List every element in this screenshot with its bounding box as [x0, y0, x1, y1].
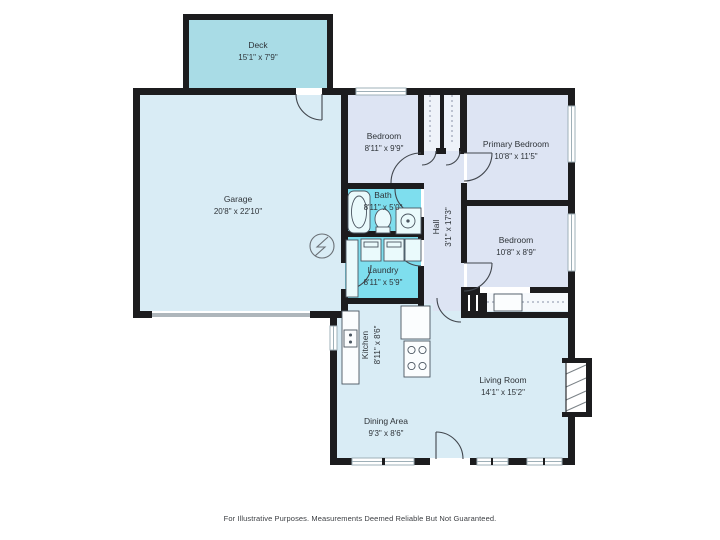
stove — [404, 341, 430, 377]
front-door-gap — [430, 458, 470, 465]
toilet — [375, 209, 391, 229]
fireplace — [565, 363, 586, 412]
room-deck — [186, 17, 330, 91]
electrical-panel-icon — [310, 234, 334, 258]
disclaimer-text: For Illustrative Purposes. Measurements … — [0, 514, 720, 523]
linen-closet — [461, 293, 487, 313]
floor-plan-page: Deck 15'1" x 7'9" Garage 20'8" x 22'10" … — [0, 0, 720, 540]
room-bedroom-right — [467, 206, 568, 287]
kitchen-sink — [344, 330, 357, 347]
room-fills — [136, 17, 568, 460]
room-hall — [424, 151, 464, 311]
garage-deck-door-gap — [296, 88, 322, 95]
refrigerator — [401, 306, 430, 339]
room-primary-bedroom — [467, 91, 568, 200]
closet-dresser — [494, 294, 522, 311]
laundry-counter — [346, 240, 358, 297]
room-garage — [136, 91, 345, 315]
kitchen-counter — [342, 311, 359, 384]
laundry-cabinet — [405, 239, 421, 261]
garage-door — [152, 311, 310, 318]
floor-plan-drawing — [0, 0, 720, 540]
room-bedroom-top — [345, 91, 424, 186]
